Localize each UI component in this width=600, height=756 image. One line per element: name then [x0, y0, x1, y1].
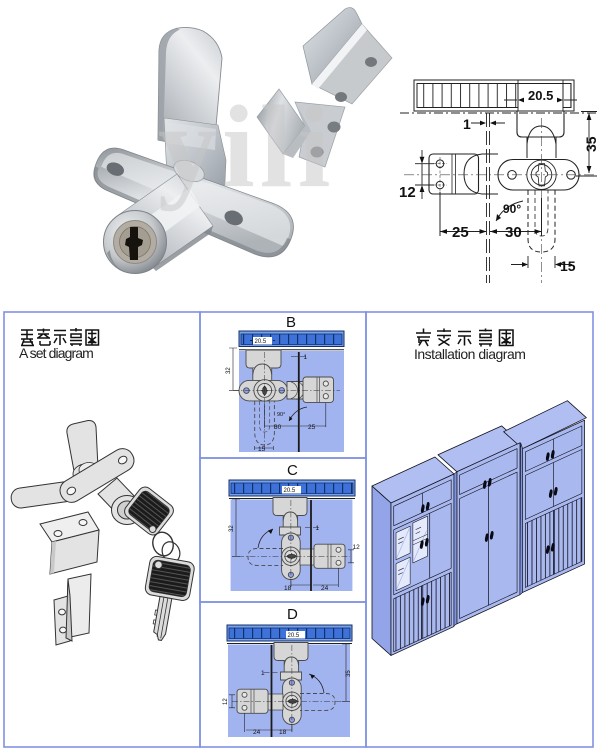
- svg-text:90°: 90°: [277, 412, 285, 418]
- svg-text:18: 18: [284, 585, 292, 592]
- svg-text:Installation diagram: Installation diagram: [414, 346, 525, 362]
- svg-text:20.5: 20.5: [255, 339, 267, 345]
- svg-text:A set diagram: A set diagram: [19, 345, 93, 361]
- svg-text:30: 30: [274, 424, 282, 431]
- svg-text:30: 30: [505, 224, 522, 241]
- svg-text:1: 1: [304, 354, 308, 361]
- svg-text:18: 18: [279, 729, 287, 736]
- svg-text:1: 1: [261, 670, 265, 677]
- svg-text:25: 25: [308, 424, 316, 431]
- svg-text:25: 25: [452, 224, 469, 241]
- svg-text:B: B: [286, 314, 296, 331]
- svg-text:15: 15: [258, 446, 266, 453]
- svg-text:15: 15: [560, 258, 576, 274]
- svg-text:32: 32: [229, 525, 235, 532]
- svg-text:35: 35: [583, 136, 599, 152]
- svg-text:12: 12: [223, 698, 229, 705]
- svg-text:12: 12: [353, 544, 361, 551]
- svg-text:1: 1: [463, 116, 471, 132]
- svg-text:C: C: [287, 462, 298, 479]
- svg-text:12: 12: [399, 184, 416, 201]
- svg-text:90°: 90°: [503, 202, 521, 216]
- svg-text:1: 1: [316, 525, 320, 532]
- svg-text:24: 24: [253, 729, 261, 736]
- svg-text:20.5: 20.5: [288, 633, 300, 639]
- svg-text:32: 32: [226, 367, 232, 374]
- svg-text:35: 35: [346, 670, 352, 677]
- svg-text:20.5: 20.5: [284, 488, 296, 494]
- svg-text:24: 24: [321, 585, 329, 592]
- svg-text:yili: yili: [158, 81, 335, 212]
- svg-text:20.5: 20.5: [528, 88, 553, 103]
- svg-text:D: D: [287, 606, 298, 623]
